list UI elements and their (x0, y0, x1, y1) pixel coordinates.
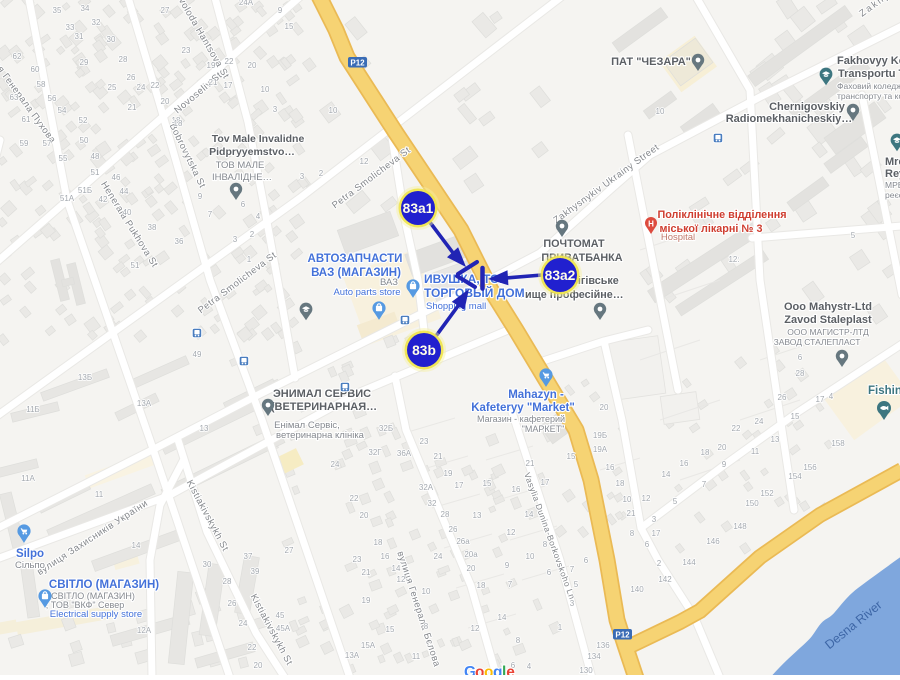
svg-text:ЗАВОД СТАЛЕПЛАСТ: ЗАВОД СТАЛЕПЛАСТ (774, 337, 861, 347)
svg-text:11: 11 (95, 490, 104, 499)
svg-text:16: 16 (680, 459, 689, 468)
svg-text:15: 15 (567, 452, 576, 461)
svg-text:13: 13 (200, 424, 209, 433)
svg-text:Ooo Mahystr-Ltd: Ooo Mahystr-Ltd (784, 301, 872, 313)
svg-text:17: 17 (816, 395, 825, 404)
svg-text:15: 15 (791, 412, 800, 421)
svg-text:5: 5 (673, 497, 678, 506)
svg-text:13: 13 (771, 435, 780, 444)
svg-text:134: 134 (587, 652, 601, 661)
svg-text:3: 3 (570, 599, 575, 608)
svg-text:Kafeteryy "Market": Kafeteryy "Market" (471, 402, 575, 414)
svg-text:48: 48 (91, 152, 100, 161)
svg-text:3: 3 (233, 235, 238, 244)
svg-text:15: 15 (483, 479, 492, 488)
svg-text:5: 5 (851, 231, 856, 240)
svg-text:26: 26 (228, 599, 237, 608)
svg-text:32: 32 (92, 18, 101, 27)
svg-text:17: 17 (224, 81, 233, 90)
svg-text:154: 154 (788, 472, 802, 481)
svg-text:21: 21 (526, 459, 535, 468)
svg-text:140: 140 (630, 585, 644, 594)
svg-text:18: 18 (174, 119, 183, 128)
svg-text:19Б: 19Б (593, 431, 607, 440)
svg-text:6: 6 (241, 200, 246, 209)
svg-text:ПАТ "ЧЕЗАРА": ПАТ "ЧЕЗАРА" (611, 56, 691, 68)
svg-text:19: 19 (207, 61, 216, 70)
svg-text:83b: 83b (412, 343, 436, 358)
svg-text:4: 4 (256, 212, 261, 221)
svg-text:Сільпо: Сільпо (15, 560, 45, 571)
svg-text:3: 3 (300, 172, 305, 181)
svg-text:28: 28 (223, 577, 232, 586)
svg-text:130: 130 (579, 666, 593, 675)
svg-text:146: 146 (706, 537, 720, 546)
svg-text:30: 30 (203, 560, 212, 569)
svg-text:P12: P12 (615, 631, 630, 640)
svg-text:СВІТЛО (МАГАЗИН): СВІТЛО (МАГАЗИН) (49, 579, 159, 591)
svg-text:12:: 12: (728, 255, 739, 264)
svg-text:Chernigovskiy: Chernigovskiy (769, 101, 846, 113)
svg-text:37: 37 (244, 552, 253, 561)
svg-text:32А: 32А (419, 483, 434, 492)
svg-text:14: 14 (525, 510, 534, 519)
svg-text:12А: 12А (137, 626, 152, 635)
svg-text:17: 17 (541, 478, 550, 487)
svg-text:ПОЧТОМАТ: ПОЧТОМАТ (543, 238, 605, 250)
svg-text:9: 9 (278, 6, 283, 15)
svg-text:26a: 26a (456, 537, 470, 546)
svg-text:19: 19 (362, 596, 371, 605)
svg-text:ЭНИМАЛ СЕРВИС: ЭНИМАЛ СЕРВИС (273, 388, 371, 400)
svg-text:7: 7 (508, 580, 513, 589)
svg-text:1: 1 (558, 623, 563, 632)
svg-text:18: 18 (477, 581, 486, 590)
svg-text:45А: 45А (276, 624, 291, 633)
svg-text:25: 25 (108, 83, 117, 92)
svg-text:21: 21 (209, 78, 218, 87)
svg-text:14: 14 (132, 541, 141, 550)
svg-text:20: 20 (254, 661, 263, 670)
svg-text:11Б: 11Б (26, 405, 40, 414)
svg-text:10: 10 (526, 552, 535, 561)
svg-text:51: 51 (131, 261, 140, 270)
svg-text:2: 2 (657, 559, 662, 568)
svg-text:ТОВ МАЛЕ: ТОВ МАЛЕ (216, 160, 265, 171)
svg-text:7: 7 (570, 565, 575, 574)
svg-text:ІНВАЛІДНЕ…: ІНВАЛІДНЕ… (212, 172, 272, 183)
svg-text:9: 9 (505, 561, 510, 570)
svg-text:9: 9 (198, 192, 203, 201)
svg-text:14: 14 (662, 470, 671, 479)
svg-text:3: 3 (273, 105, 278, 114)
svg-text:6: 6 (645, 540, 650, 549)
svg-text:Магазин - кафетерий: Магазин - кафетерий (477, 414, 565, 424)
svg-text:20: 20 (161, 97, 170, 106)
svg-text:55: 55 (59, 154, 68, 163)
svg-text:16: 16 (606, 463, 615, 472)
svg-text:Transportu Ta: Transportu Ta (838, 68, 900, 80)
svg-text:12: 12 (507, 528, 516, 537)
svg-text:15: 15 (285, 22, 294, 31)
svg-text:26: 26 (127, 73, 136, 82)
svg-text:Auto parts store: Auto parts store (333, 287, 400, 298)
svg-text:17: 17 (455, 481, 464, 490)
svg-text:28: 28 (441, 510, 450, 519)
svg-text:13Б: 13Б (78, 373, 92, 382)
svg-text:22: 22 (248, 643, 257, 652)
svg-text:59: 59 (20, 139, 29, 148)
svg-text:56: 56 (48, 94, 57, 103)
svg-text:61: 61 (22, 115, 31, 124)
svg-text:11А: 11А (21, 474, 35, 483)
svg-text:20a: 20a (464, 550, 478, 559)
svg-text:19: 19 (444, 469, 453, 478)
svg-text:2: 2 (319, 169, 324, 178)
svg-text:30: 30 (107, 35, 116, 44)
svg-text:28: 28 (119, 55, 128, 64)
svg-text:136: 136 (596, 641, 610, 650)
svg-text:1: 1 (247, 255, 252, 264)
svg-text:58: 58 (37, 80, 46, 89)
svg-text:23: 23 (420, 437, 429, 446)
svg-text:МРЕ: МРЕ (885, 180, 900, 190)
svg-text:142: 142 (658, 575, 672, 584)
svg-text:4: 4 (829, 392, 834, 401)
svg-text:44: 44 (120, 187, 129, 196)
svg-text:11: 11 (751, 447, 760, 456)
svg-text:10: 10 (261, 85, 270, 94)
svg-text:2: 2 (250, 230, 255, 239)
svg-text:10: 10 (656, 107, 665, 116)
svg-text:3: 3 (652, 515, 657, 524)
svg-text:12: 12 (397, 575, 406, 584)
svg-text:35: 35 (53, 6, 62, 15)
svg-text:15: 15 (386, 625, 395, 634)
svg-text:14: 14 (498, 613, 507, 622)
svg-text:150: 150 (745, 499, 759, 508)
svg-text:144: 144 (682, 558, 696, 567)
svg-text:транспорту та ко…: транспорту та ко… (837, 91, 900, 101)
svg-text:ветеринарна клініка: ветеринарна клініка (276, 430, 365, 441)
svg-text:31: 31 (75, 32, 84, 41)
svg-text:24: 24 (239, 619, 248, 628)
svg-text:H: H (648, 220, 654, 229)
svg-text:51А: 51А (60, 194, 75, 203)
svg-text:20: 20 (600, 403, 609, 412)
svg-text:16: 16 (381, 552, 390, 561)
svg-text:42: 42 (99, 195, 108, 204)
svg-text:18: 18 (701, 448, 710, 457)
svg-text:Hospital: Hospital (661, 232, 695, 243)
svg-text:Electrical supply store: Electrical supply store (50, 609, 142, 620)
svg-text:21: 21 (434, 452, 443, 461)
svg-text:P12: P12 (350, 59, 365, 68)
svg-text:33: 33 (66, 23, 75, 32)
svg-text:6: 6 (798, 353, 803, 362)
svg-text:20: 20 (360, 511, 369, 520)
svg-text:21: 21 (128, 103, 137, 112)
svg-text:83a2: 83a2 (545, 268, 576, 283)
svg-text:32: 32 (428, 499, 437, 508)
svg-text:22: 22 (350, 494, 359, 503)
svg-text:24: 24 (331, 460, 340, 469)
svg-text:Pidpryyemstvo…: Pidpryyemstvo… (209, 146, 295, 158)
svg-text:46: 46 (112, 173, 121, 182)
svg-text:7: 7 (702, 480, 707, 489)
svg-text:20: 20 (248, 61, 257, 70)
svg-text:60: 60 (31, 65, 40, 74)
svg-text:16: 16 (512, 485, 521, 494)
svg-text:e: e (506, 664, 515, 675)
svg-text:13А: 13А (137, 399, 152, 408)
svg-text:24А: 24А (239, 0, 254, 7)
svg-text:22: 22 (732, 424, 741, 433)
svg-text:8: 8 (516, 636, 521, 645)
svg-text:14: 14 (392, 564, 401, 573)
svg-text:ООО МАГИСТР-ЛТД: ООО МАГИСТР-ЛТД (787, 327, 869, 337)
svg-text:20: 20 (718, 443, 727, 452)
svg-text:Silpo: Silpo (16, 548, 44, 560)
svg-text:26: 26 (449, 525, 458, 534)
svg-text:10: 10 (623, 495, 632, 504)
svg-text:8: 8 (630, 529, 635, 538)
svg-text:"МАРКЕТ": "МАРКЕТ" (522, 424, 565, 434)
svg-text:6: 6 (584, 556, 589, 565)
svg-text:54: 54 (58, 106, 67, 115)
svg-text:6: 6 (547, 568, 552, 577)
svg-text:22: 22 (151, 81, 160, 90)
svg-text:19А: 19А (593, 445, 608, 454)
svg-text:Фаховий коледж: Фаховий коледж (837, 81, 900, 91)
svg-text:23: 23 (353, 555, 362, 564)
svg-text:63: 63 (10, 93, 19, 102)
svg-text:45: 45 (276, 611, 285, 620)
svg-text:13А: 13А (345, 651, 360, 660)
svg-text:32Б: 32Б (379, 424, 393, 433)
svg-text:32Г: 32Г (368, 448, 382, 457)
svg-text:Mre: Mre (885, 156, 900, 168)
svg-text:9: 9 (722, 460, 727, 469)
svg-text:52: 52 (79, 116, 88, 125)
svg-text:20: 20 (467, 564, 476, 573)
svg-text:40: 40 (123, 208, 132, 217)
svg-text:Zavod Staleplast: Zavod Staleplast (784, 314, 872, 326)
svg-text:12: 12 (642, 494, 651, 503)
svg-text:57: 57 (43, 139, 52, 148)
svg-text:148: 148 (733, 522, 747, 531)
svg-text:Tov Male Invalidne: Tov Male Invalidne (212, 133, 305, 145)
svg-text:12: 12 (360, 157, 369, 166)
svg-text:21: 21 (627, 509, 636, 518)
svg-text:Radiomekhanicheskiy…: Radiomekhanicheskiy… (726, 113, 853, 125)
svg-text:158: 158 (831, 439, 845, 448)
svg-text:Fakhovyy Kole: Fakhovyy Kole (837, 55, 900, 67)
svg-text:34: 34 (81, 4, 90, 13)
svg-text:24: 24 (434, 552, 443, 561)
svg-text:62: 62 (13, 52, 22, 61)
svg-text:152: 152 (760, 489, 774, 498)
svg-text:83a1: 83a1 (403, 201, 434, 216)
svg-text:10: 10 (329, 106, 338, 115)
svg-text:(ВЕТЕРИНАРНАЯ…: (ВЕТЕРИНАРНАЯ… (271, 401, 377, 413)
svg-text:26: 26 (778, 393, 787, 402)
svg-text:36: 36 (175, 237, 184, 246)
svg-text:17: 17 (652, 529, 661, 538)
svg-text:реєс: реєс (885, 190, 900, 200)
svg-text:29: 29 (80, 58, 89, 67)
svg-text:51: 51 (91, 168, 100, 177)
svg-text:Поліклінічне відділення: Поліклінічне відділення (657, 209, 786, 221)
svg-text:АВТОЗАПЧАСТИ: АВТОЗАПЧАСТИ (308, 253, 403, 265)
svg-text:21: 21 (362, 568, 371, 577)
svg-text:24: 24 (137, 83, 146, 92)
svg-text:8: 8 (543, 540, 548, 549)
svg-text:38: 38 (148, 223, 157, 232)
svg-text:Fishing st: Fishing st (868, 385, 900, 397)
svg-text:12: 12 (471, 624, 480, 633)
svg-text:10: 10 (422, 587, 431, 596)
svg-text:Rey: Rey (885, 168, 900, 180)
svg-text:7: 7 (208, 210, 213, 219)
svg-text:13: 13 (473, 511, 482, 520)
svg-text:24: 24 (755, 417, 764, 426)
svg-text:50: 50 (80, 136, 89, 145)
svg-text:18: 18 (616, 479, 625, 488)
svg-text:36А: 36А (397, 449, 412, 458)
svg-text:18: 18 (374, 538, 383, 547)
svg-text:15А: 15А (361, 641, 376, 650)
svg-text:5: 5 (574, 580, 579, 589)
svg-text:51Б: 51Б (78, 186, 92, 195)
svg-text:4: 4 (527, 662, 532, 671)
svg-text:27: 27 (285, 546, 294, 555)
svg-text:8: 8 (424, 622, 429, 631)
svg-text:27: 27 (161, 6, 170, 15)
svg-text:156: 156 (803, 463, 817, 472)
svg-text:49: 49 (193, 350, 202, 359)
svg-text:11: 11 (412, 652, 421, 661)
svg-text:28: 28 (796, 369, 805, 378)
svg-text:23: 23 (182, 46, 191, 55)
svg-text:Mahazyn -: Mahazyn - (508, 389, 564, 401)
svg-text:39: 39 (251, 567, 260, 576)
svg-text:22: 22 (225, 57, 234, 66)
